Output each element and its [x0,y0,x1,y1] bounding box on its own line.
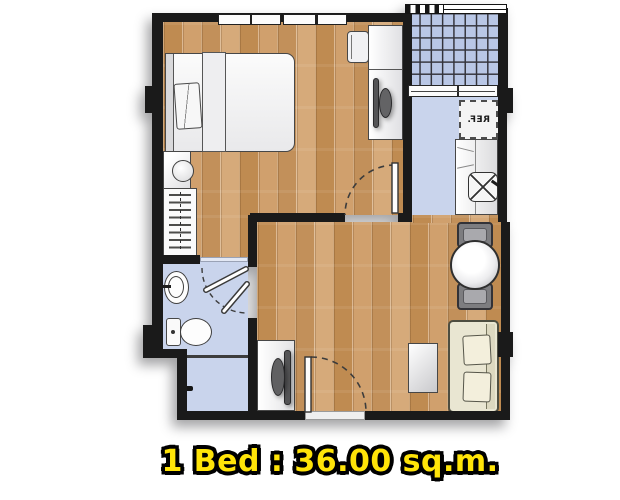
counter-edge-line-1 [457,147,474,152]
wall-bedroom-living-a [250,213,345,222]
wardrobe-hanger-rail [169,192,191,252]
wall-left-column [145,86,152,113]
washbasin-faucet [163,285,171,288]
sofa-pillow-1 [462,334,492,365]
wall-right-balcony [498,8,508,92]
shower-partition [187,355,248,358]
wall-right-living [501,222,510,420]
toilet-bowl [180,318,212,346]
refrigerator-label: REF. [467,115,490,125]
toilet-flush-button [171,330,175,334]
table-lamp [172,160,194,182]
bed-pillow [173,82,202,130]
desk-chair-back [351,35,352,59]
wall-bottom-left [177,411,305,420]
wall-right-column-living [498,332,513,357]
monitor-base [379,88,392,118]
desk-chair [347,31,369,63]
wardrobe [163,188,197,256]
wall-left [152,13,163,357]
bed-blanket-fold [202,52,226,152]
tv-base [271,358,285,396]
wall-bottom-right [365,411,510,420]
caption-text: 1 Bed : 36.00 sq.m. [161,444,498,479]
balcony-floor [408,13,498,85]
bed-headboard [166,54,174,151]
sofa [448,320,499,413]
toilet-tank [166,318,181,346]
entrance-threshold [305,411,365,420]
wall-bathroom-right-top [248,215,257,267]
coffee-table [408,343,438,393]
bathroom-threshold [200,257,248,262]
desk-divider [369,69,402,70]
counter-edge-line-2 [457,164,474,169]
wall-top [152,13,412,22]
refrigerator: REF. [459,100,498,139]
sofa-pillow-2 [462,372,491,403]
kitchen-sink [468,172,498,202]
tv-screen [284,350,291,405]
caption: 1 Bed : 36.00 sq.m. 1 Bed : 36.00 sq.m. [140,444,520,479]
balcony-railing [443,4,507,14]
bedroom-window-2 [283,14,347,25]
dining-table [450,240,500,290]
wall-bathroom-top [152,255,200,264]
floor-plan-page: REF. [0,0,620,500]
bedroom-window-1 [218,14,281,25]
balcony-sliding-door [408,85,498,97]
bed [165,53,295,152]
floor-plan: REF. [0,0,620,500]
balcony-railing-checker [405,4,445,14]
wall-bedroom-living-b [398,213,412,222]
wall-bathroom-right-bottom [248,318,257,411]
washbasin [164,271,189,304]
wall-bedroom-kitchen [403,13,412,222]
wall-shower-left [177,352,187,420]
